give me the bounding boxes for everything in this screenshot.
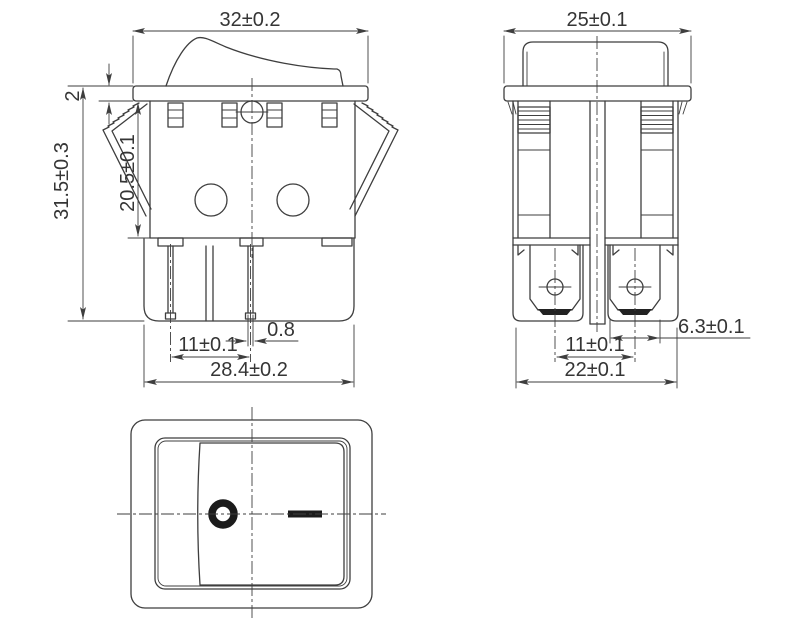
dim-side-body-width: 22±0.1 — [564, 359, 625, 381]
dim-total-height: 31.5±0.3 — [51, 142, 73, 220]
terminal-pins — [158, 238, 352, 321]
dim-front-width: 32±0.2 — [219, 9, 280, 31]
mounting-flange — [133, 86, 368, 101]
side-view: 25±0.1 6.3±0.1 11±0.1 22±0.1 — [504, 9, 750, 388]
ribbed-clips — [518, 107, 673, 133]
side-dimensions: 25±0.1 6.3±0.1 11±0.1 22±0.1 — [504, 9, 750, 388]
switch-body-side — [513, 101, 678, 324]
dim-terminal-width: 6.3±0.1 — [678, 316, 745, 338]
dim-pin-thickness: 0.8 — [267, 319, 295, 341]
mounting-flange-side — [504, 86, 691, 101]
body-hole-right — [277, 184, 309, 216]
rocker-side — [523, 42, 668, 86]
dim-side-width: 25±0.1 — [566, 9, 627, 31]
switch-body — [144, 101, 355, 321]
snap-clip-right — [350, 103, 398, 216]
rocker-profile — [166, 38, 343, 86]
drawing-page: 32±0.2 2 20.5±0.1 31.5±0.3 0.8 11±0.1 — [0, 0, 789, 626]
lower-housing — [144, 239, 354, 321]
dim-flange-thickness: 2 — [62, 90, 84, 101]
front-view: 32±0.2 2 20.5±0.1 31.5±0.3 0.8 11±0.1 — [51, 9, 398, 387]
body-hole-left — [195, 184, 227, 216]
faston-terminal-right — [608, 245, 678, 321]
dim-terminal-spacing: 11±0.1 — [565, 334, 625, 356]
dim-front-pin-spacing: 11±0.1 — [178, 334, 238, 356]
dim-lower-body-width: 28.4±0.2 — [210, 359, 288, 381]
technical-drawing-canvas: 32±0.2 2 20.5±0.1 31.5±0.3 0.8 11±0.1 — [0, 0, 789, 626]
top-view — [117, 407, 386, 620]
faston-terminal-left — [513, 245, 583, 321]
dim-mount-depth: 20.5±0.1 — [117, 134, 139, 212]
front-dimensions: 32±0.2 2 20.5±0.1 31.5±0.3 0.8 11±0.1 — [51, 9, 368, 387]
